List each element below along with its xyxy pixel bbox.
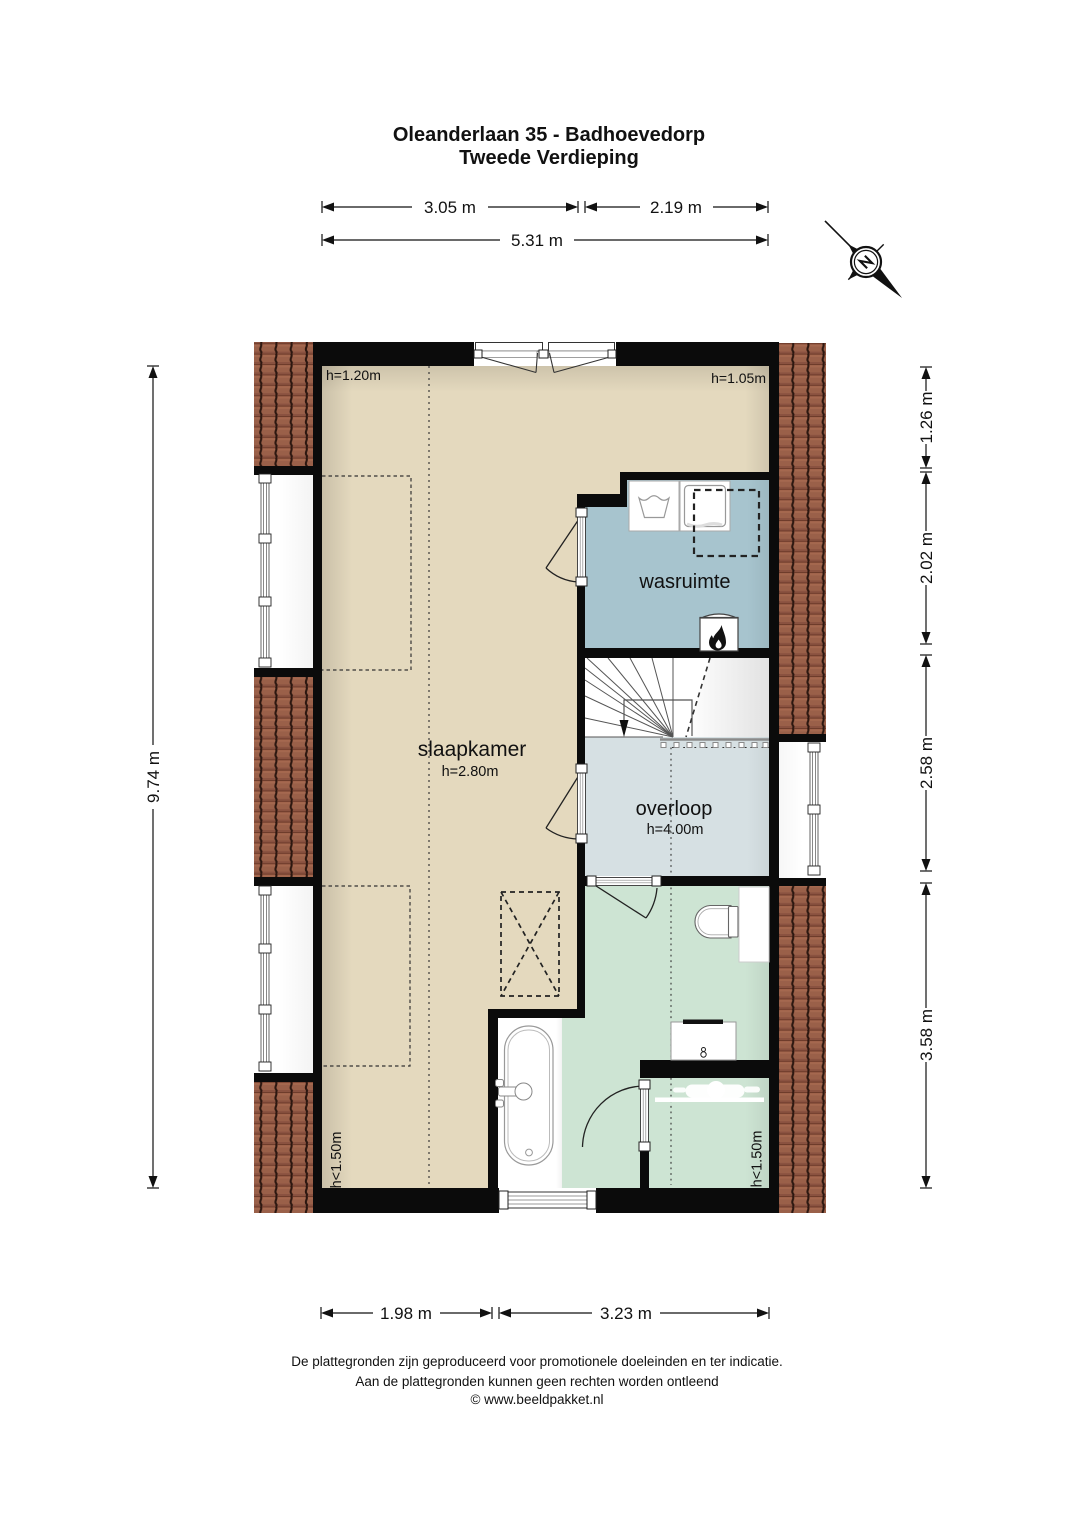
svg-text:1.26 m: 1.26 m bbox=[917, 392, 936, 444]
svg-text:h=1.05m: h=1.05m bbox=[711, 370, 766, 386]
svg-text:© www.beeldpakket.nl: © www.beeldpakket.nl bbox=[470, 1392, 603, 1407]
svg-text:slaapkamer: slaapkamer bbox=[418, 738, 527, 761]
svg-text:overloop: overloop bbox=[636, 798, 713, 820]
svg-text:h=2.80m: h=2.80m bbox=[442, 764, 499, 780]
svg-text:h=4.00m: h=4.00m bbox=[647, 822, 704, 838]
svg-text:3.23 m: 3.23 m bbox=[600, 1304, 652, 1323]
svg-text:Tweede Verdieping: Tweede Verdieping bbox=[459, 147, 639, 169]
svg-text:wasruimte: wasruimte bbox=[638, 571, 730, 593]
svg-text:h=1.20m: h=1.20m bbox=[326, 367, 381, 383]
svg-text:h<1.50m: h<1.50m bbox=[750, 1131, 766, 1188]
svg-text:5.31 m: 5.31 m bbox=[511, 231, 563, 250]
svg-text:Oleanderlaan 35 - Badhoevedorp: Oleanderlaan 35 - Badhoevedorp bbox=[393, 124, 705, 146]
svg-text:h<1.50m: h<1.50m bbox=[329, 1132, 345, 1189]
svg-text:9.74 m: 9.74 m bbox=[144, 751, 163, 803]
svg-text:2.58 m: 2.58 m bbox=[917, 737, 936, 789]
svg-text:2.02 m: 2.02 m bbox=[917, 532, 936, 584]
svg-text:Aan de plattegronden kunnen ge: Aan de plattegronden kunnen geen rechten… bbox=[355, 1374, 718, 1389]
svg-text:2.19 m: 2.19 m bbox=[650, 198, 702, 217]
svg-text:3.58 m: 3.58 m bbox=[917, 1009, 936, 1061]
svg-text:De plattegronden zijn geproduc: De plattegronden zijn geproduceerd voor … bbox=[291, 1354, 783, 1369]
svg-text:3.05 m: 3.05 m bbox=[424, 198, 476, 217]
svg-text:1.98 m: 1.98 m bbox=[380, 1304, 432, 1323]
